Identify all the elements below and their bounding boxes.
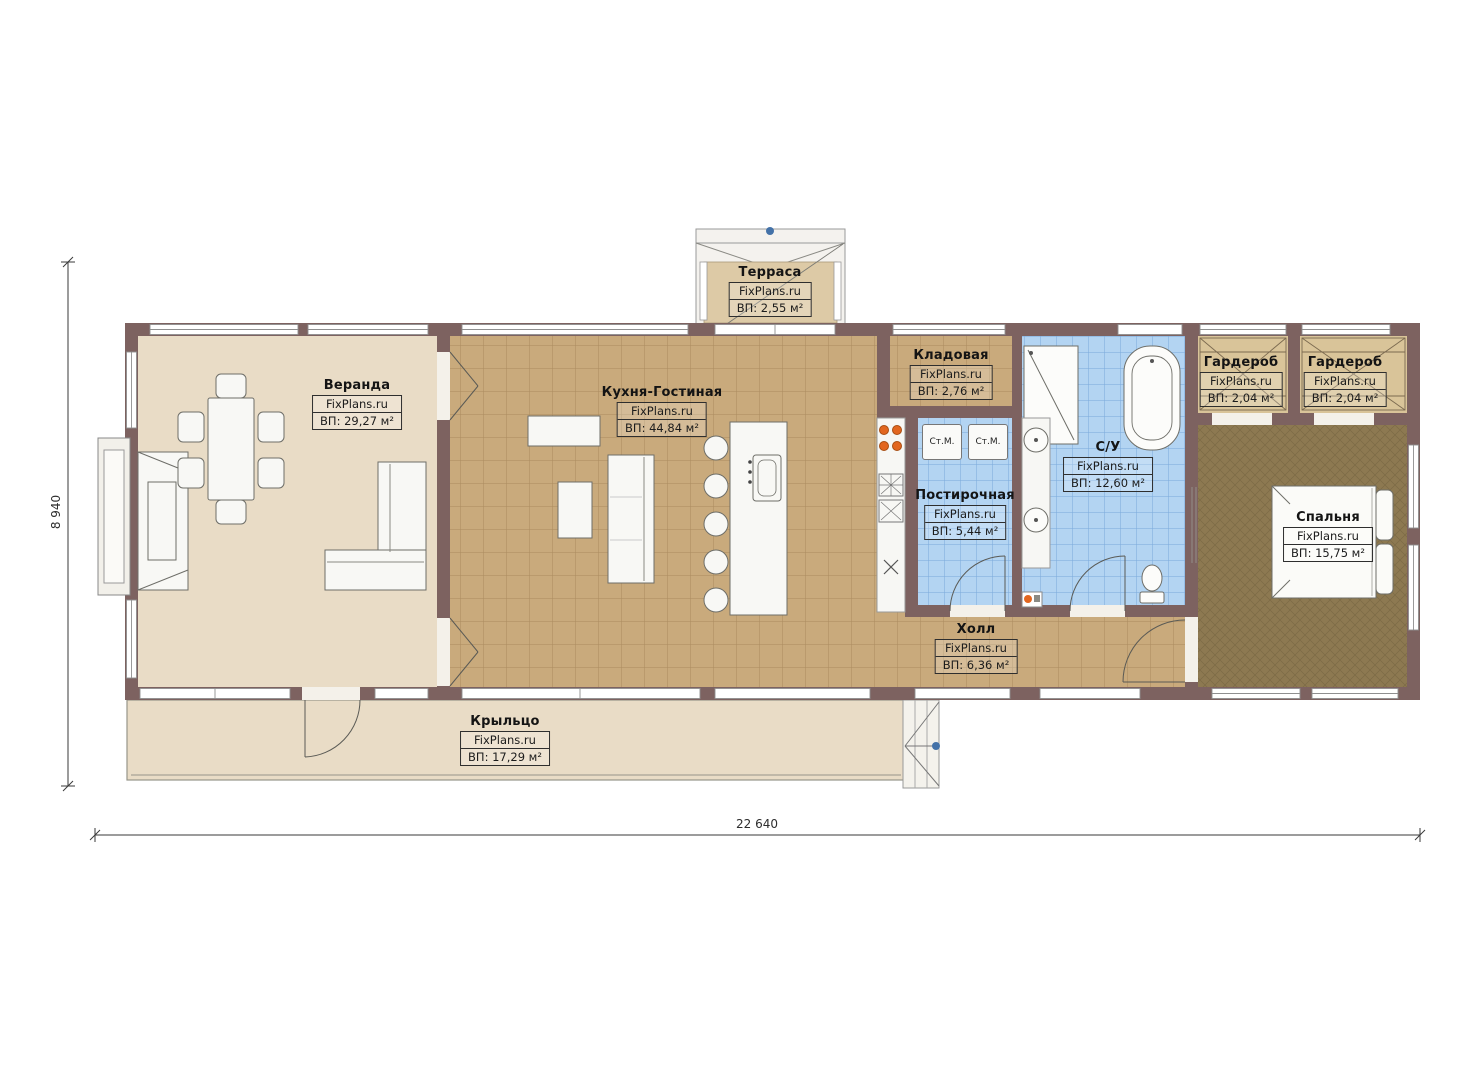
room-label-wardrobe-right: Гардероб FixPlans.ru ВП: 2,04 м² [1304,355,1387,407]
room-info-box: FixPlans.ru ВП: 5,44 м² [924,505,1007,540]
room-name: Веранда [312,378,402,393]
room-label-wardrobe-left: Гардероб FixPlans.ru ВП: 2,04 м² [1200,355,1283,407]
porch-steps [903,700,940,788]
room-brand: FixPlans.ru [1201,373,1282,390]
washing-machine-right: Ст.М. [968,424,1008,460]
washer-label: Ст.М. [975,437,1000,447]
pillow [1376,544,1393,594]
room-brand: FixPlans.ru [1064,458,1152,475]
wall-laundry-bathroom [1012,336,1022,605]
wall-hall-top [905,605,1185,617]
room-info-box: FixPlans.ru ВП: 12,60 м² [1063,457,1153,492]
vanity-sinks [1022,418,1050,568]
dimension-height: 8 940 [49,495,63,529]
kitchen-counter [877,418,905,612]
room-brand: FixPlans.ru [618,403,706,420]
wall-storage-bottom [890,406,1012,418]
room-info-box: FixPlans.ru ВП: 29,27 м² [312,395,402,430]
room-name: Гардероб [1200,355,1283,370]
room-label-veranda: Веранда FixPlans.ru ВП: 29,27 м² [312,378,402,430]
room-info-box: FixPlans.ru ВП: 2,04 м² [1304,372,1387,407]
room-label-hall: Холл FixPlans.ru ВП: 6,36 м² [935,622,1018,674]
room-name: Кухня-Гостиная [602,385,723,400]
room-brand: FixPlans.ru [313,396,401,413]
room-name: Крыльцо [460,714,550,729]
room-info-box: FixPlans.ru ВП: 17,29 м² [460,731,550,766]
chair [216,500,246,524]
room-name: Холл [935,622,1018,637]
room-area: ВП: 5,44 м² [925,523,1006,539]
room-area: ВП: 12,60 м² [1064,475,1152,491]
room-info-box: FixPlans.ru ВП: 6,36 м² [935,639,1018,674]
room-area: ВП: 29,27 м² [313,413,401,429]
room-brand: FixPlans.ru [911,366,992,383]
room-brand: FixPlans.ru [936,640,1017,657]
room-area: ВП: 2,76 м² [911,383,992,399]
chair [216,374,246,398]
room-name: Постирочная [915,488,1015,503]
room-info-box: FixPlans.ru ВП: 2,76 м² [910,365,993,400]
bathtub [1124,346,1180,450]
room-label-bedroom: Спальня FixPlans.ru ВП: 15,75 м² [1283,510,1373,562]
fireplace [98,438,188,595]
room-info-box: FixPlans.ru ВП: 15,75 м² [1283,527,1373,562]
room-brand: FixPlans.ru [1305,373,1386,390]
toilet [1140,565,1164,603]
room-brand: FixPlans.ru [925,506,1006,523]
wall-kitchen-storage [877,336,890,418]
room-area: ВП: 17,29 м² [461,749,549,765]
room-area: ВП: 6,36 м² [936,657,1017,673]
room-label-bathroom: С/У FixPlans.ru ВП: 12,60 м² [1063,440,1153,492]
room-area: ВП: 15,75 м² [1284,545,1372,561]
stove-burner [893,426,902,435]
chair [258,458,284,488]
room-area: ВП: 2,55 м² [730,300,811,316]
room-info-box: FixPlans.ru ВП: 2,55 м² [729,282,812,317]
room-area: ВП: 2,04 м² [1305,390,1386,406]
terrace-direction-marker [766,227,774,235]
wall-wardrobe-divider [1288,336,1300,413]
room-name: С/У [1063,440,1153,455]
chair [178,458,204,488]
room-name: Гардероб [1304,355,1387,370]
room-area: ВП: 2,04 м² [1201,390,1282,406]
room-label-storage: Кладовая FixPlans.ru ВП: 2,76 м² [910,348,993,400]
room-info-box: FixPlans.ru ВП: 44,84 м² [617,402,707,437]
washer-label: Ст.М. [929,437,954,447]
room-label-terrace: Терраса FixPlans.ru ВП: 2,55 м² [729,265,812,317]
dimension-width: 22 640 [736,817,778,831]
floor-plan-page: Терраса FixPlans.ru ВП: 2,55 м² Веранда … [0,0,1474,1080]
room-brand: FixPlans.ru [461,732,549,749]
room-name: Кладовая [910,348,993,363]
room-info-box: FixPlans.ru ВП: 2,04 м² [1200,372,1283,407]
room-label-kitchen-living: Кухня-Гостиная FixPlans.ru ВП: 44,84 м² [602,385,723,437]
washing-machine-left: Ст.М. [922,424,962,460]
floor-plan-drawing [0,0,1474,1080]
room-area: ВП: 44,84 м² [618,420,706,436]
chair [178,412,204,442]
coffee-table [558,482,592,538]
room-brand: FixPlans.ru [1284,528,1372,545]
room-label-laundry: Постирочная FixPlans.ru ВП: 5,44 м² [915,488,1015,540]
boiler [1022,592,1042,607]
living-sofa [608,455,654,583]
step-direction-marker [932,742,940,750]
room-name: Спальня [1283,510,1373,525]
chair [258,412,284,442]
tv-bench [528,416,600,446]
room-brand: FixPlans.ru [730,283,811,300]
room-label-porch: Крыльцо FixPlans.ru ВП: 17,29 м² [460,714,550,766]
kitchen-island [730,422,787,615]
room-name: Терраса [729,265,812,280]
pillow [1376,490,1393,540]
